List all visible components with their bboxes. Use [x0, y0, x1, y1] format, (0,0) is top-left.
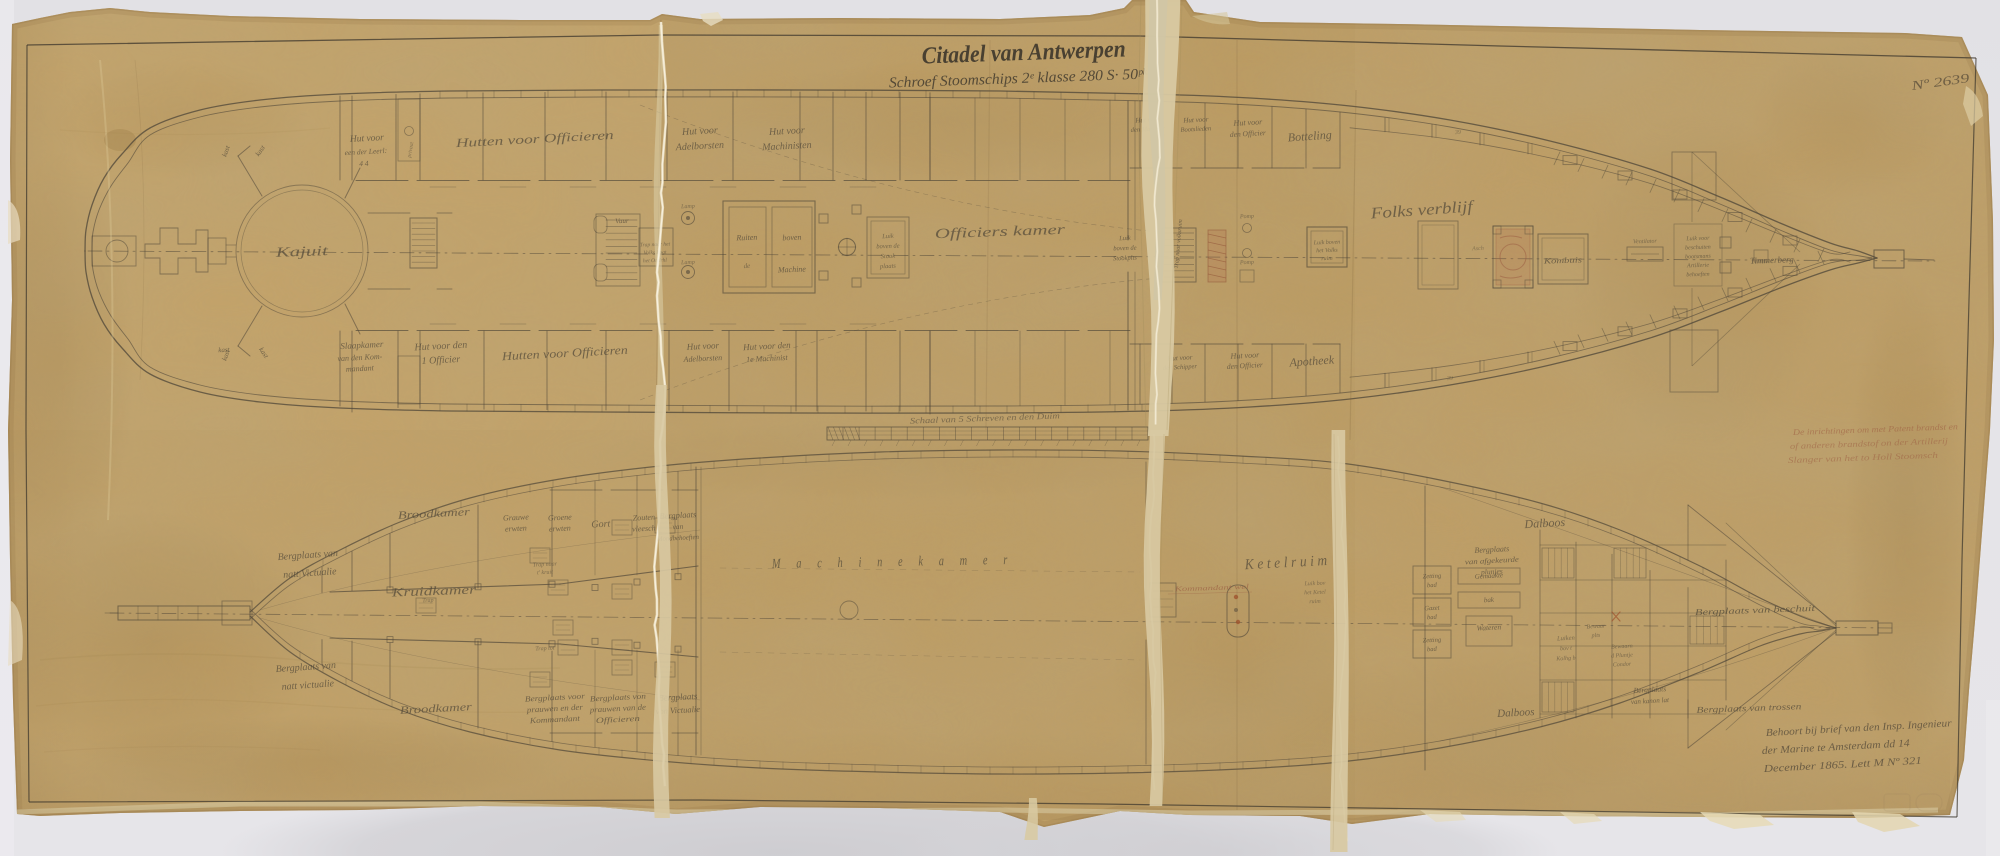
svg-text:bootsmans: bootsmans — [1685, 254, 1712, 261]
svg-text:Condor: Condor — [1613, 661, 1632, 668]
svg-text:de: de — [743, 262, 750, 270]
svg-text:Zetting: Zetting — [1423, 572, 1443, 580]
svg-text:bad: bad — [1427, 646, 1438, 654]
svg-text:Pomp: Pomp — [1239, 260, 1254, 267]
svg-text:Luik boven: Luik boven — [1313, 240, 1341, 247]
svg-text:Ventilator: Ventilator — [1633, 239, 1658, 246]
svg-text:het Ondrhl: het Ondrhl — [643, 258, 668, 265]
svg-text:Hut voor: Hut voor — [685, 340, 719, 352]
svg-text:beschuiten: beschuiten — [1685, 245, 1711, 252]
svg-text:Luiken: Luiken — [1556, 635, 1575, 643]
svg-text:Luik bov: Luik bov — [1303, 581, 1325, 588]
svg-text:plaats: plaats — [879, 263, 897, 271]
svg-text:Stookplts: Stookplts — [1113, 255, 1138, 263]
svg-text:t' kruit: t' kruit — [537, 570, 553, 577]
svg-text:39: 39 — [1446, 376, 1453, 382]
svg-text:plts: plts — [1590, 633, 1601, 640]
svg-text:4 4: 4 4 — [359, 159, 369, 168]
svg-text:Groene: Groene — [548, 512, 573, 522]
svg-text:bak: bak — [1484, 596, 1495, 605]
svg-text:Hut voor: Hut voor — [768, 125, 805, 138]
svg-text:Bergplaats: Bergplaats — [1474, 544, 1509, 555]
svg-text:het Volks: het Volks — [1316, 248, 1338, 255]
svg-text:Vuur: Vuur — [615, 217, 629, 225]
svg-text:Pomp: Pomp — [1239, 214, 1254, 221]
svg-text:39: 39 — [1454, 130, 1461, 136]
svg-text:Zetting: Zetting — [1423, 636, 1443, 644]
svg-text:Luik: Luik — [881, 233, 894, 240]
svg-text:Bewaarn: Bewaarn — [1611, 643, 1633, 650]
svg-text:Kolhg b: Kolhg b — [1555, 656, 1575, 663]
svg-text:Gemaakte: Gemaakte — [1475, 571, 1504, 580]
svg-text:bad: bad — [1427, 582, 1438, 590]
svg-text:erwten: erwten — [505, 523, 527, 533]
svg-text:1 Officier: 1 Officier — [421, 354, 460, 367]
svg-text:den Officier: den Officier — [1227, 360, 1264, 371]
svg-text:Bergplaats: Bergplaats — [1633, 684, 1666, 695]
svg-text:Hut voor: Hut voor — [681, 125, 718, 138]
svg-text:boven: boven — [782, 233, 801, 243]
svg-text:Ruiten: Ruiten — [735, 233, 757, 243]
svg-text:boven de: boven de — [1113, 245, 1137, 253]
svg-text:Trap: Trap — [422, 598, 434, 605]
svg-text:Hut voor: Hut voor — [349, 133, 385, 145]
svg-text:Bewaar: Bewaar — [1586, 623, 1606, 630]
svg-text:Hut voor: Hut voor — [1182, 115, 1209, 124]
svg-text:het Ketel: het Ketel — [1304, 590, 1326, 597]
svg-text:Trap tot: Trap tot — [535, 645, 555, 652]
svg-text:ruim: ruim — [1321, 256, 1333, 262]
svg-text:Machine: Machine — [777, 265, 807, 275]
svg-text:Grauwe: Grauwe — [503, 512, 530, 522]
svg-text:vleesch: vleesch — [632, 523, 656, 533]
svg-text:Lamp: Lamp — [680, 260, 695, 267]
svg-text:Kajuit: Kajuit — [274, 244, 330, 261]
svg-text:van: van — [672, 522, 684, 532]
svg-text:mandant: mandant — [346, 363, 375, 373]
svg-text:Gort: Gort — [591, 519, 611, 531]
svg-text:ruim: ruim — [1309, 599, 1321, 605]
svg-text:Dalboos: Dalboos — [1496, 706, 1535, 720]
svg-text:erwten: erwten — [549, 523, 571, 533]
svg-text:behoeften: behoeften — [1686, 271, 1710, 279]
svg-text:Luik: Luik — [1118, 235, 1131, 242]
svg-text:Zouten: Zouten — [633, 512, 656, 522]
svg-text:d Pluntje: d Pluntje — [1611, 652, 1633, 659]
svg-text:Hut voor: Hut voor — [1229, 350, 1260, 361]
svg-text:Gazet: Gazet — [1424, 605, 1440, 613]
svg-text:bov t: bov t — [1560, 646, 1572, 653]
svg-text:Dalboos: Dalboos — [1523, 515, 1566, 531]
svg-text:boven de: boven de — [876, 243, 900, 251]
svg-text:den Officier: den Officier — [1230, 128, 1267, 139]
svg-text:Artillerie: Artillerie — [1686, 263, 1710, 270]
svg-text:Luik voor: Luik voor — [1685, 236, 1710, 243]
svg-text:Timmerberg: Timmerberg — [1750, 254, 1794, 266]
svg-text:Asch: Asch — [1471, 246, 1484, 252]
svg-text:bad: bad — [1427, 614, 1438, 622]
svg-text:Lamp: Lamp — [680, 204, 695, 211]
svg-text:Kombuis: Kombuis — [1542, 255, 1582, 265]
svg-text:Wateren: Wateren — [1476, 622, 1501, 632]
svg-text:Stook: Stook — [881, 253, 896, 261]
